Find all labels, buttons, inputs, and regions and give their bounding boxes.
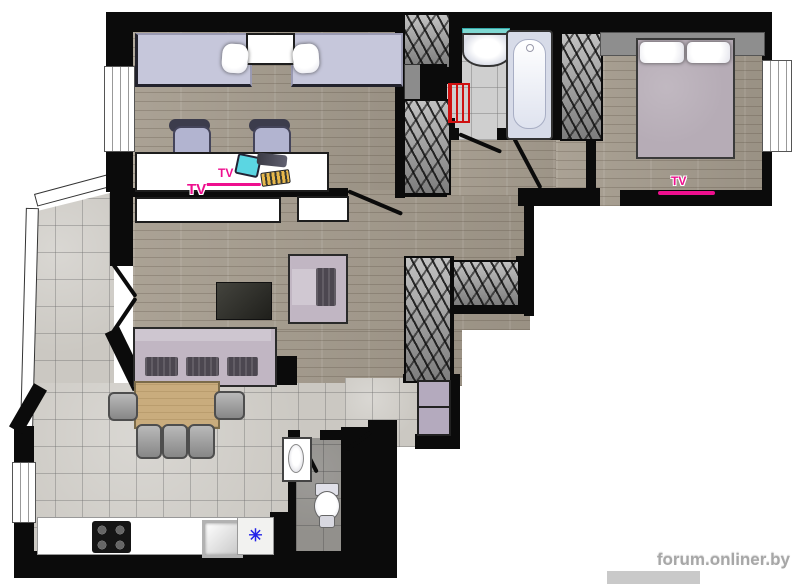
dining-chair (188, 424, 215, 459)
wall (14, 519, 34, 553)
dining-chair (162, 424, 188, 459)
window-bedroom (762, 60, 792, 152)
fridge: ✳ (237, 517, 274, 555)
dining-chair (136, 424, 162, 459)
bottom-gray-bar (607, 571, 700, 584)
bathroom-sink (462, 33, 512, 67)
wardrobe-hall-vertical (404, 256, 452, 383)
toilet-base (319, 515, 335, 528)
coffee-table (216, 282, 272, 320)
bathtub (506, 30, 553, 140)
balcony-floor (28, 192, 114, 388)
watermark: forum.onliner.by (560, 550, 790, 570)
hob (92, 521, 131, 553)
floor-plan: TV TV TV (0, 0, 800, 584)
tv-label-bedroom: TV (671, 175, 686, 187)
wardrobe (403, 99, 451, 195)
wardrobe-hall-horizontal (452, 260, 520, 307)
snowflake-icon: ✳ (248, 526, 262, 546)
wall (320, 430, 345, 440)
wall (524, 204, 534, 316)
wall (415, 434, 460, 449)
wardrobe-bedroom-closet (560, 32, 603, 141)
pouffe (417, 406, 451, 436)
bathtub-basin (513, 39, 546, 129)
armchair-seat (292, 269, 316, 305)
armchair (288, 254, 348, 324)
tv-bedroom (658, 191, 715, 195)
pillow (687, 42, 730, 63)
radiator (448, 83, 470, 123)
pillow (292, 43, 320, 74)
wall (762, 148, 772, 206)
tv-label-kids: TV (218, 167, 233, 179)
wall (368, 420, 397, 556)
wardrobe (403, 13, 451, 69)
sofa-cushion (227, 357, 258, 376)
window-kitchen (12, 462, 36, 523)
wall (586, 135, 596, 196)
sofa-back (135, 329, 271, 341)
wall (14, 426, 34, 464)
tv-label-living: TV (187, 182, 206, 197)
dining-chair (108, 392, 138, 421)
tv-kids (205, 183, 261, 186)
pillow (221, 43, 249, 74)
dining-chair (214, 391, 245, 420)
window-kids-room (104, 66, 135, 152)
sofa-cushion (145, 357, 178, 376)
armchair-cushion (316, 268, 336, 306)
wall (420, 64, 447, 99)
cabinet (297, 196, 349, 222)
wc-sink (282, 437, 312, 482)
pillow (640, 42, 684, 63)
wall (110, 188, 133, 266)
nightstand-between-beds (246, 33, 295, 65)
wall (106, 148, 133, 192)
bathtub-faucet (526, 44, 534, 52)
wall (106, 32, 133, 68)
sofa (133, 327, 277, 387)
tv-cabinet (135, 197, 281, 223)
wc-sink-basin (288, 444, 304, 473)
sofa-cushion (186, 357, 219, 376)
dining-table (134, 381, 220, 429)
